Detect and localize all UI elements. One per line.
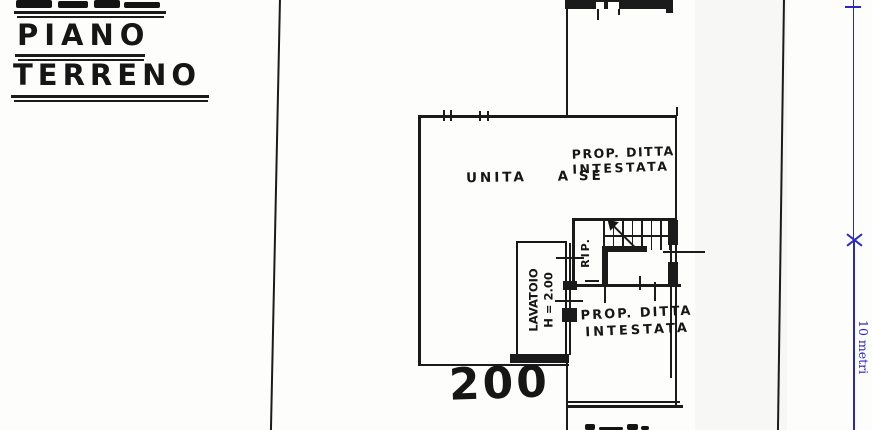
dimension-tick bbox=[676, 107, 678, 116]
title-terreno: TERRENO bbox=[13, 60, 201, 92]
neighbor-upper-line2: INTESTATA bbox=[572, 159, 675, 176]
scale-bar-upper bbox=[853, 0, 855, 240]
dimension-tick bbox=[555, 300, 583, 302]
ink-mark bbox=[16, 0, 52, 8]
ink-mark bbox=[94, 0, 120, 8]
wall-end-cap bbox=[666, 0, 673, 13]
neighbor-label-lower: PROP. DITTA INTESTATA bbox=[580, 305, 693, 341]
boundary-line-lower bbox=[566, 356, 568, 430]
dimension-tick bbox=[604, 277, 606, 303]
stair-room-label: RIP. bbox=[579, 237, 592, 268]
window-jamb bbox=[668, 262, 678, 286]
dimension-tick bbox=[597, 9, 599, 20]
scale-label: 10 metri bbox=[856, 320, 871, 374]
scale-top-tick bbox=[845, 6, 861, 8]
boundary-line-left bbox=[270, 0, 281, 430]
door-jamb bbox=[562, 308, 577, 322]
scan-shade-band bbox=[695, 0, 787, 430]
terreno-underline bbox=[14, 100, 208, 102]
wall-opening bbox=[608, 2, 619, 9]
neighbor-label-upper: PROP. DITTA INTESTATA bbox=[572, 144, 676, 176]
dimension-tick bbox=[450, 110, 452, 121]
unit-wall-left bbox=[418, 115, 421, 366]
stair-wall-inner-h bbox=[602, 246, 647, 252]
door-jamb bbox=[563, 281, 577, 290]
dimension-tick bbox=[487, 111, 489, 121]
dimension-tick bbox=[443, 110, 445, 121]
floor-plan-scan: PIANO TERRENO UNITA A SE PROP. DITTA INT… bbox=[0, 0, 872, 430]
window-sill-tick bbox=[663, 251, 705, 253]
terreno-underline bbox=[11, 95, 209, 98]
ink-mark bbox=[627, 424, 638, 430]
lavatoio-name: LAVATOIO bbox=[527, 268, 542, 331]
gap-line bbox=[569, 243, 571, 355]
stair-wall-bottom bbox=[571, 284, 681, 287]
stair-mid-line bbox=[603, 235, 676, 237]
ink-mark bbox=[58, 1, 88, 8]
dimension-tick bbox=[639, 276, 641, 290]
neighbor-lower-line2: INTESTATA bbox=[585, 322, 693, 341]
ink-mark bbox=[124, 2, 160, 8]
parcel-number: 200 bbox=[448, 358, 550, 410]
lower-wall-thin bbox=[568, 401, 680, 403]
unit-wall-top bbox=[418, 115, 677, 118]
dimension-tick bbox=[585, 280, 599, 282]
ink-mark bbox=[641, 426, 649, 430]
stair-label-box: RIP. bbox=[573, 229, 597, 275]
dimension-tick bbox=[618, 9, 620, 15]
clipped-text-fragment bbox=[583, 422, 655, 430]
scale-bar-lower bbox=[853, 239, 855, 430]
ink-mark bbox=[585, 424, 595, 430]
dimension-tick bbox=[556, 257, 584, 259]
dimension-tick bbox=[479, 111, 481, 121]
title-underline bbox=[14, 11, 166, 14]
piano-underline bbox=[15, 54, 145, 57]
dimension-tick bbox=[654, 282, 656, 301]
boundary-drop-line bbox=[566, 9, 568, 116]
lower-wall-thick bbox=[568, 405, 683, 409]
title-piano: PIANO bbox=[17, 20, 150, 52]
clipped-title-line bbox=[16, 0, 166, 9]
wall-opening bbox=[596, 2, 604, 9]
